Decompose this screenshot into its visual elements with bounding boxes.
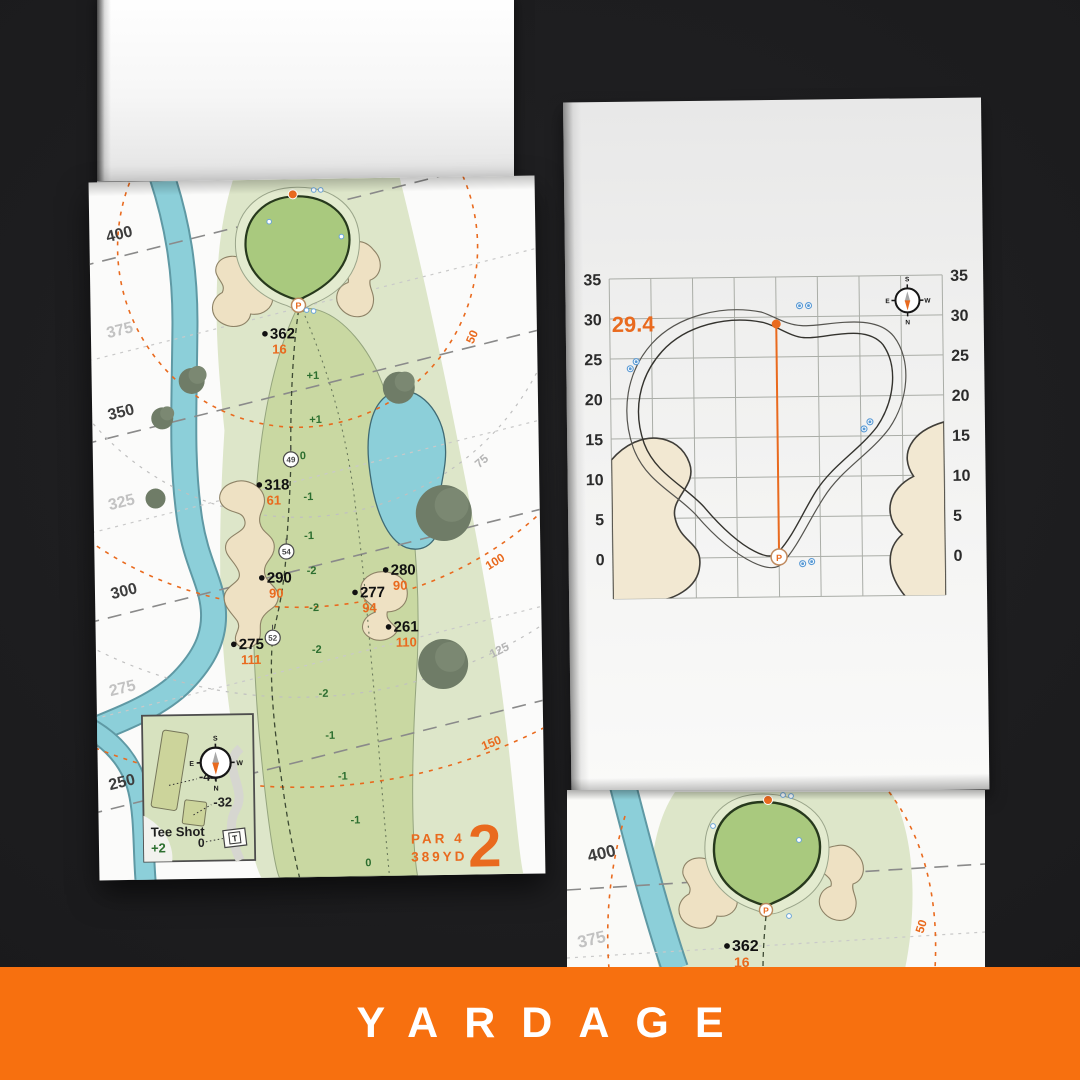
elevation: -1 (303, 491, 313, 503)
elevation: -1 (351, 814, 361, 826)
hole-number: 2 (467, 812, 501, 880)
svg-text:N: N (905, 319, 910, 326)
svg-text:277: 277 (360, 584, 385, 601)
hole-par: PAR 4 (411, 831, 465, 847)
tick-label: 10 (586, 472, 604, 489)
pin-letter: P (295, 301, 301, 311)
arc-label: 50 (913, 918, 931, 935)
svg-text:261: 261 (393, 618, 418, 635)
tee-marker-icon: T (223, 828, 247, 848)
hole-map: 400 375 350 325 300 275 250 50 75 100 1 (89, 176, 546, 881)
svg-text:S: S (213, 736, 218, 743)
elevation: -1 (304, 530, 314, 542)
hole-map-page: 400 375 350 325 300 275 250 50 75 100 1 (89, 176, 546, 881)
distance-label: 325 (107, 491, 137, 514)
tick-label: 20 (952, 388, 970, 405)
waypoint-value: 49 (286, 455, 296, 464)
depth-value: 29.4 (612, 311, 656, 337)
tick-label: 35 (583, 272, 601, 289)
elevation: -1 (325, 730, 335, 742)
tick-label: 30 (584, 312, 602, 329)
svg-text:290: 290 (267, 569, 292, 586)
pin-letter: P (763, 906, 769, 916)
svg-text:90: 90 (269, 586, 284, 601)
svg-text:S: S (905, 276, 910, 283)
distance-label: 350 (106, 401, 136, 424)
elevation: 0 (300, 450, 306, 462)
pin-marker: P (291, 298, 305, 312)
svg-text:275: 275 (239, 636, 264, 653)
svg-text:280: 280 (391, 561, 416, 578)
distance-label: 300 (109, 580, 139, 603)
flipped-blank-page (97, 0, 514, 183)
distance-label: 275 (107, 677, 137, 700)
tick-label: 10 (953, 468, 971, 485)
distance-label: 400 (104, 223, 134, 246)
svg-text:94: 94 (362, 600, 377, 615)
tick-label: 15 (952, 428, 970, 445)
svg-text:90: 90 (393, 578, 408, 593)
svg-text:W: W (236, 760, 243, 767)
next-hole-map: 400 375 50 P (567, 790, 985, 969)
svg-text:61: 61 (266, 493, 281, 508)
strokes-gained: +2 (151, 840, 166, 855)
tick-label: 20 (585, 392, 603, 409)
tick-label: 35 (950, 268, 968, 285)
svg-text:E: E (885, 298, 890, 305)
tick-label: 25 (951, 348, 969, 365)
green-chart-page: P 29.4 35 30 25 20 15 10 5 (563, 97, 989, 794)
arc-label: 50 (463, 328, 481, 346)
tick-label: 0 (953, 548, 962, 565)
distance-label: 400 (586, 841, 618, 866)
svg-text:111: 111 (241, 652, 261, 667)
elevation: -2 (309, 602, 319, 614)
elevation: +1 (307, 370, 320, 382)
tee-shot-inset: -44 -32 Tee Shot +2 0 T (142, 714, 255, 862)
tick-label: 25 (584, 352, 602, 369)
svg-text:362: 362 (732, 938, 759, 955)
tick-label: 0 (596, 552, 605, 569)
tick-label: 30 (951, 308, 969, 325)
next-hole-map-page: 400 375 50 P (567, 790, 985, 969)
elevation: 0 (365, 857, 371, 869)
svg-text:318: 318 (264, 476, 289, 493)
pin-position-dot (764, 796, 773, 805)
tee-zero: 0 (198, 836, 205, 850)
compass-icon: S N E W (885, 276, 932, 327)
elevation: -2 (312, 644, 322, 656)
arc-label: 75 (472, 451, 492, 471)
svg-text:16: 16 (272, 341, 287, 356)
tee-box-small (182, 800, 207, 827)
svg-text:362: 362 (270, 325, 295, 342)
yardage-banner: YARDAGE (0, 967, 1080, 1080)
tee-offset: -32 (213, 794, 232, 809)
elevation: +1 (309, 414, 322, 426)
green-chart: P 29.4 35 30 25 20 15 10 5 (563, 97, 989, 794)
svg-text:110: 110 (396, 634, 417, 649)
pin-letter: P (776, 553, 782, 563)
waypoint-value: 52 (268, 634, 278, 643)
yardage-book-mockup: 400 375 350 325 300 275 250 50 75 100 1 (0, 0, 1080, 1080)
tick-label: 5 (595, 512, 604, 529)
tick-label: 5 (953, 508, 962, 525)
elevation: -2 (319, 688, 329, 700)
pin-position-dot (288, 190, 297, 199)
waypoint-value: 54 (282, 547, 292, 556)
tick-label: 15 (585, 432, 603, 449)
svg-text:E: E (189, 761, 194, 768)
svg-text:W: W (924, 298, 931, 305)
elevation: -2 (307, 565, 317, 577)
yardage-banner-label: YARDAGE (356, 999, 749, 1048)
elevation: -1 (338, 771, 348, 783)
hole-yards: 389YD (411, 849, 468, 865)
pin-depth-line: P (768, 319, 787, 565)
distance-label: 375 (105, 319, 135, 342)
distance-label: 375 (576, 927, 608, 952)
svg-text:N: N (214, 786, 219, 793)
